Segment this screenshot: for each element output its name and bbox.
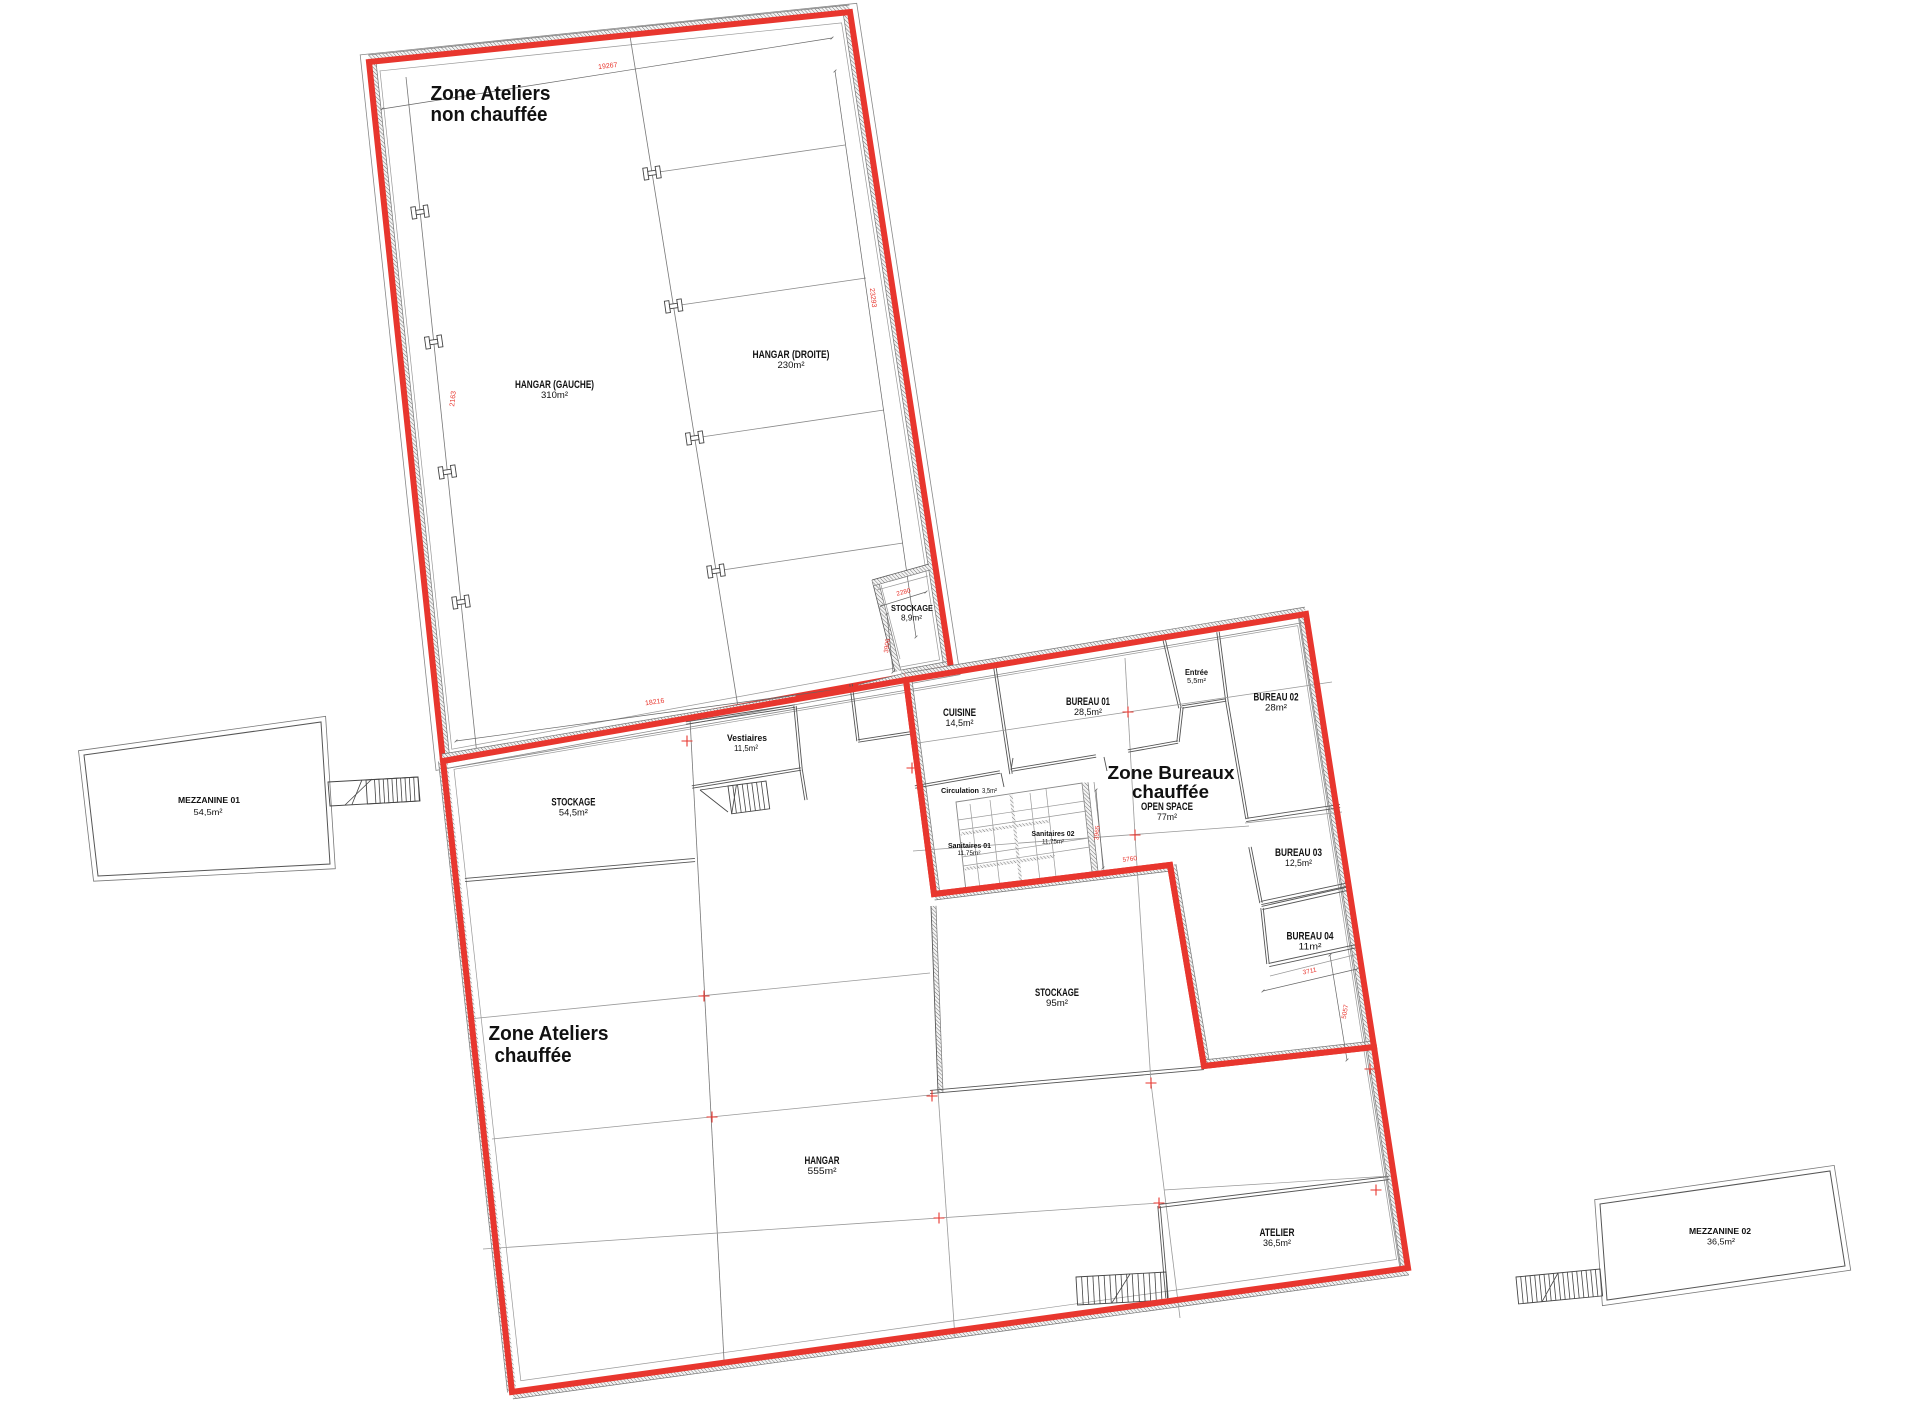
svg-text:chauffée: chauffée bbox=[495, 1044, 572, 1067]
svg-text:Sanitaires 01: Sanitaires 01 bbox=[948, 843, 991, 850]
svg-text:36,5m²: 36,5m² bbox=[1707, 1237, 1735, 1247]
svg-text:11,75m²: 11,75m² bbox=[958, 850, 982, 857]
svg-text:11,75m²: 11,75m² bbox=[1042, 839, 1065, 846]
svg-text:54,5m²: 54,5m² bbox=[194, 807, 223, 817]
svg-text:Vestiaires: Vestiaires bbox=[727, 733, 767, 743]
svg-text:11m²: 11m² bbox=[1299, 942, 1322, 953]
svg-text:MEZZANINE 02: MEZZANINE 02 bbox=[1689, 1226, 1751, 1236]
svg-text:8,9m²: 8,9m² bbox=[901, 614, 922, 623]
svg-text:95m²: 95m² bbox=[1046, 998, 1068, 1009]
svg-text:Zone Bureaux: Zone Bureaux bbox=[1108, 762, 1236, 783]
svg-text:5,5m²: 5,5m² bbox=[1187, 676, 1206, 685]
svg-text:chauffée: chauffée bbox=[1132, 781, 1209, 802]
svg-text:11,5m²: 11,5m² bbox=[734, 743, 758, 753]
svg-text:STOCKAGE: STOCKAGE bbox=[891, 603, 933, 613]
svg-text:77m²: 77m² bbox=[1157, 812, 1177, 823]
svg-text:12,5m²: 12,5m² bbox=[1285, 858, 1312, 869]
svg-text:3965: 3965 bbox=[1093, 825, 1101, 840]
svg-text:MEZZANINE 01: MEZZANINE 01 bbox=[178, 795, 240, 805]
svg-text:555m²: 555m² bbox=[808, 1166, 837, 1177]
svg-text:14,5m²: 14,5m² bbox=[946, 718, 974, 729]
svg-text:Zone Ateliers: Zone Ateliers bbox=[431, 82, 551, 105]
svg-text:3,5m²: 3,5m² bbox=[982, 788, 998, 795]
svg-text:28,5m²: 28,5m² bbox=[1074, 707, 1102, 718]
svg-text:36,5m²: 36,5m² bbox=[1263, 1238, 1291, 1249]
svg-text:Sanitaires 02: Sanitaires 02 bbox=[1032, 831, 1075, 838]
svg-text:Circulation: Circulation bbox=[941, 788, 979, 795]
svg-text:54,5m²: 54,5m² bbox=[559, 808, 588, 819]
svg-text:310m²: 310m² bbox=[541, 390, 568, 401]
svg-text:non chauffée: non chauffée bbox=[431, 103, 548, 126]
svg-text:Zone Ateliers: Zone Ateliers bbox=[489, 1022, 609, 1045]
svg-text:230m²: 230m² bbox=[778, 360, 805, 371]
svg-text:28m²: 28m² bbox=[1265, 703, 1287, 714]
